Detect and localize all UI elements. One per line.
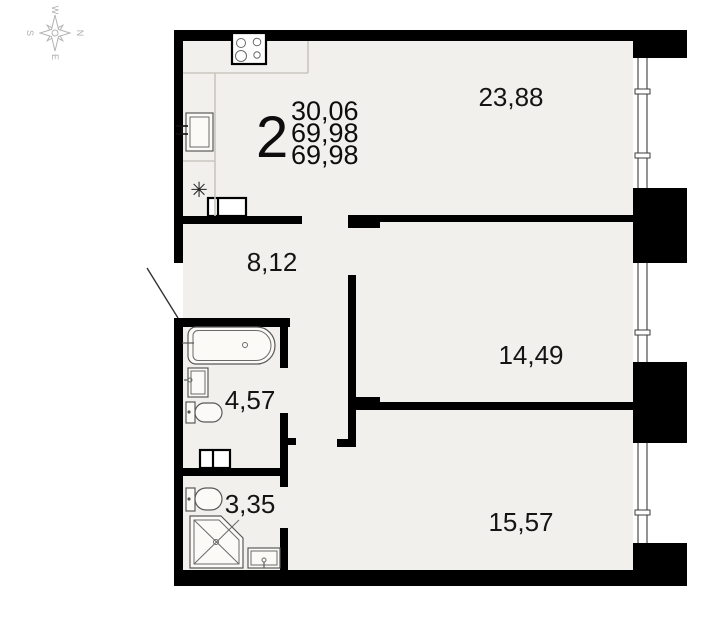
- floor-plan-drawing: W N E S: [0, 0, 701, 617]
- wall-bathroom-right-upper: [280, 318, 288, 368]
- wc-washbasin-icon: [248, 548, 280, 568]
- room-label-bedroom-2: 15,57: [488, 507, 553, 537]
- wall-bathroom-top: [183, 318, 290, 327]
- floor-plan-canvas: W N E S: [0, 0, 701, 617]
- compass-center: [52, 30, 58, 36]
- window-3: [635, 443, 650, 543]
- wall-bedroom1-left-foot: [337, 439, 348, 447]
- wall-livingroom-divider: [380, 215, 633, 222]
- door-stop-tick: [288, 438, 296, 445]
- window-2: [635, 263, 650, 362]
- wall-bathroom-wc-divider: [183, 468, 285, 476]
- compass-north-label: N: [75, 30, 85, 37]
- stove-icon: [232, 33, 266, 64]
- bathtub-icon: [182, 327, 275, 364]
- wall-kitchen-hall: [183, 216, 302, 224]
- wall-right-pier-4: [633, 543, 687, 586]
- bathroom-toilet-icon: [186, 402, 222, 423]
- apartment-info: 2 30,06 69,98 69,98: [256, 96, 359, 170]
- compass-rose: W N E S: [25, 6, 85, 60]
- shower-icon: [190, 516, 243, 568]
- vent-shaft-kitchen: [208, 198, 246, 216]
- wall-left-upper: [174, 30, 183, 263]
- entrance-door-swing: [147, 268, 178, 318]
- compass-west-label: W: [50, 6, 60, 15]
- wall-bedrooms-divider: [380, 402, 633, 410]
- vent-shaft-wc: [200, 450, 230, 468]
- room-label-bathroom: 4,57: [225, 385, 276, 415]
- wall-right-pier-1: [633, 30, 687, 58]
- fridge-symbol: ✳: [190, 178, 208, 202]
- wall-right-pier-3: [633, 362, 687, 443]
- apartment-rooms-count: 2: [256, 105, 288, 170]
- compass-south-label: S: [25, 30, 35, 36]
- room-label-kitchen-living: 23,88: [478, 82, 543, 112]
- compass-east-label: E: [50, 54, 60, 60]
- wall-left-lower: [174, 318, 183, 570]
- window-1: [635, 58, 650, 188]
- room-label-bedroom-1: 14,49: [498, 340, 563, 370]
- wall-wc-right-lower: [280, 528, 288, 570]
- wall-right-pier-2: [633, 188, 687, 263]
- wall-bedroom1-left: [348, 275, 356, 447]
- bathroom-washbasin-icon: [184, 368, 208, 397]
- apartment-total-area-with-balcony: 69,98: [291, 140, 359, 170]
- windows: [635, 58, 650, 543]
- wc-toilet-icon: [186, 488, 222, 511]
- wall-bedrooms-divider-stub: [352, 397, 380, 410]
- room-label-wc: 3,35: [225, 489, 276, 519]
- room-label-hallway: 8,12: [247, 247, 298, 277]
- wall-bottom: [174, 570, 687, 586]
- wall-livingroom-stub: [348, 215, 380, 228]
